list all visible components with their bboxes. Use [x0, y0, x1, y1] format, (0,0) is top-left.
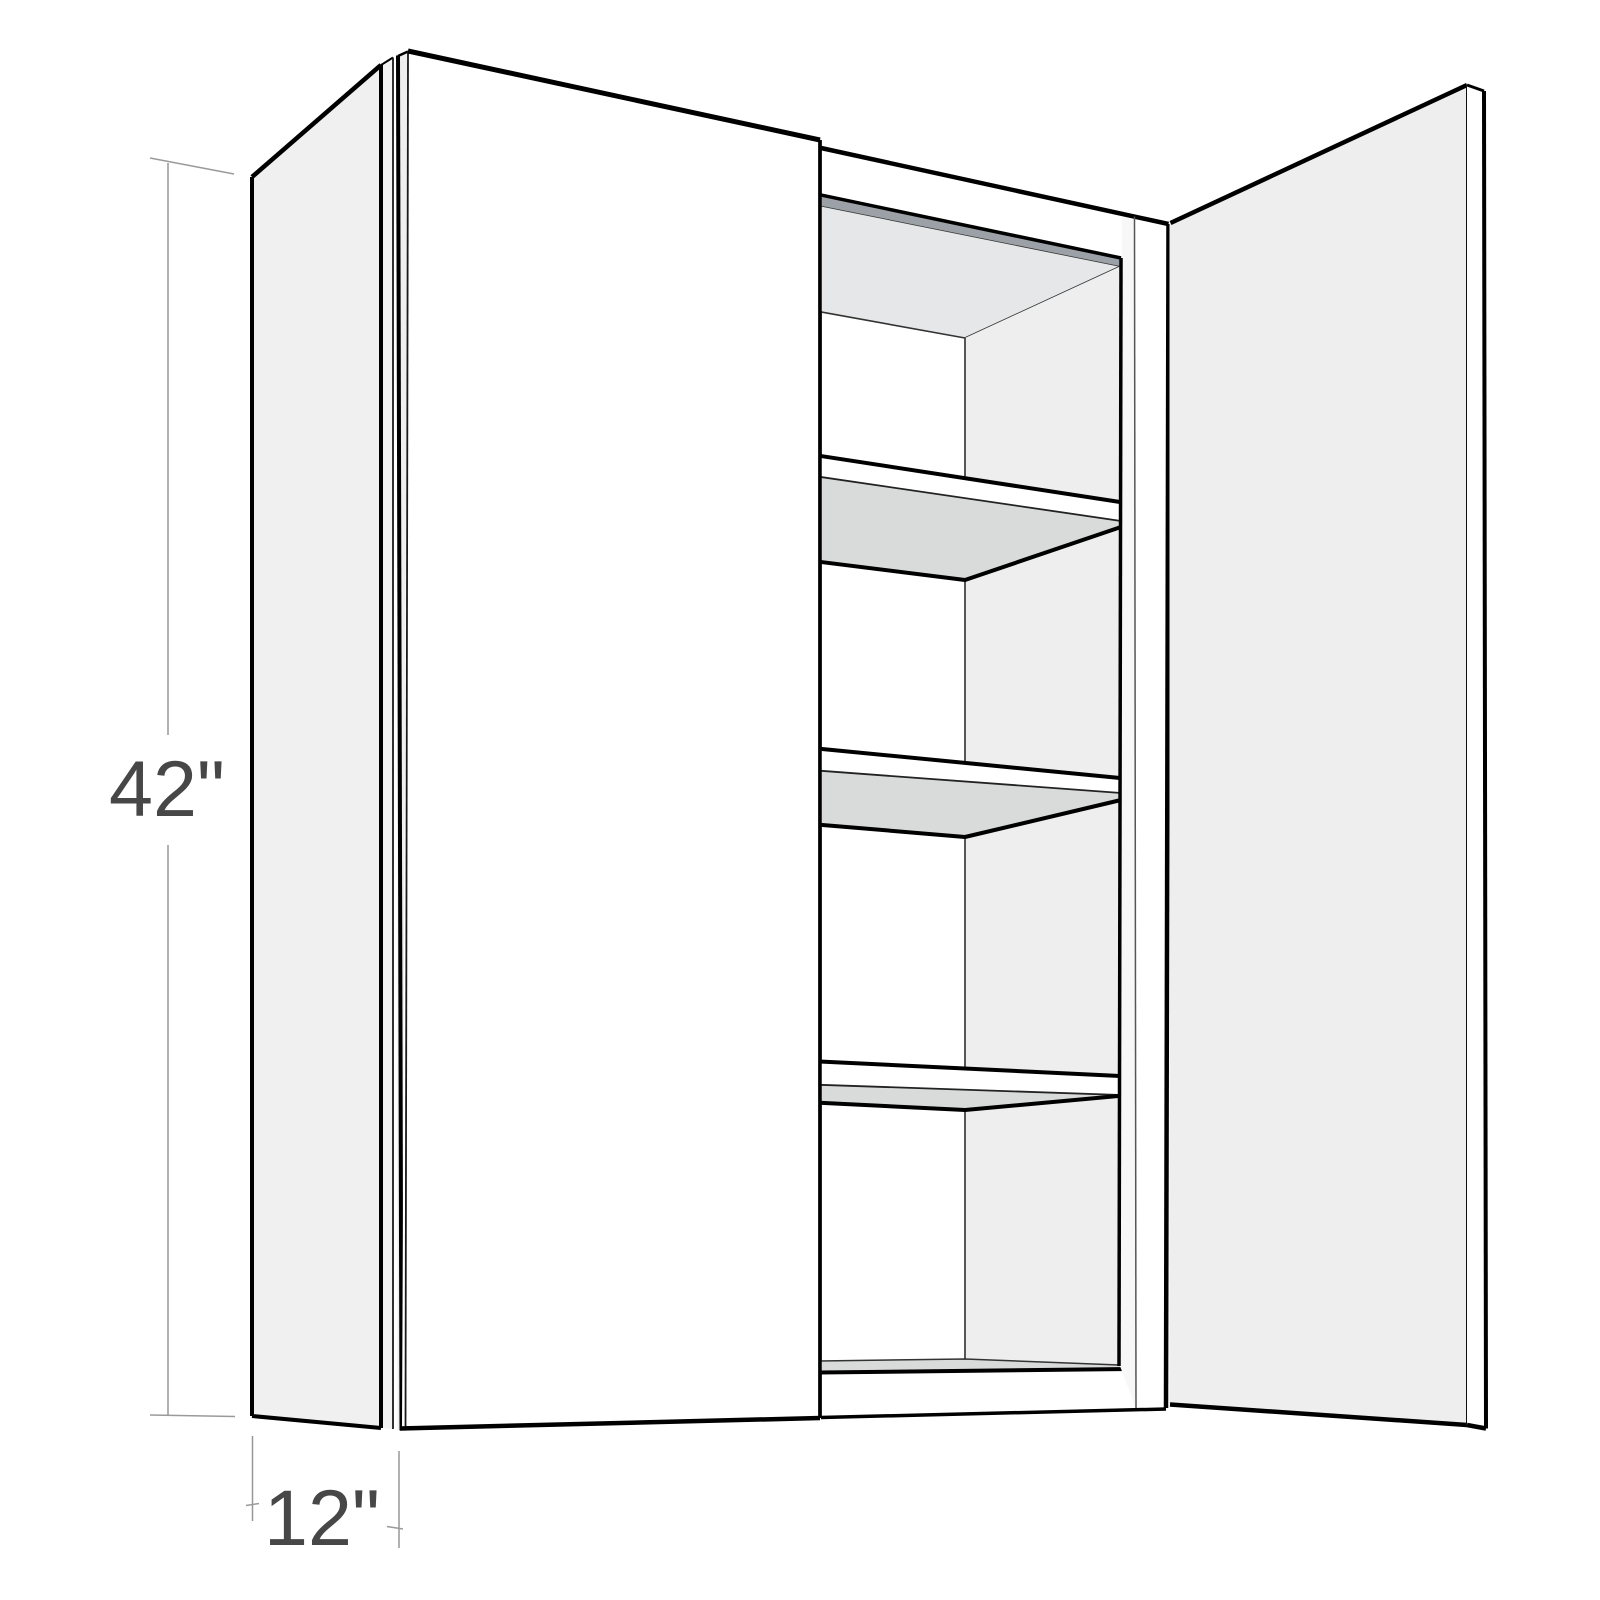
svg-text:42": 42"	[109, 744, 225, 833]
svg-text:12": 12"	[264, 1473, 380, 1562]
